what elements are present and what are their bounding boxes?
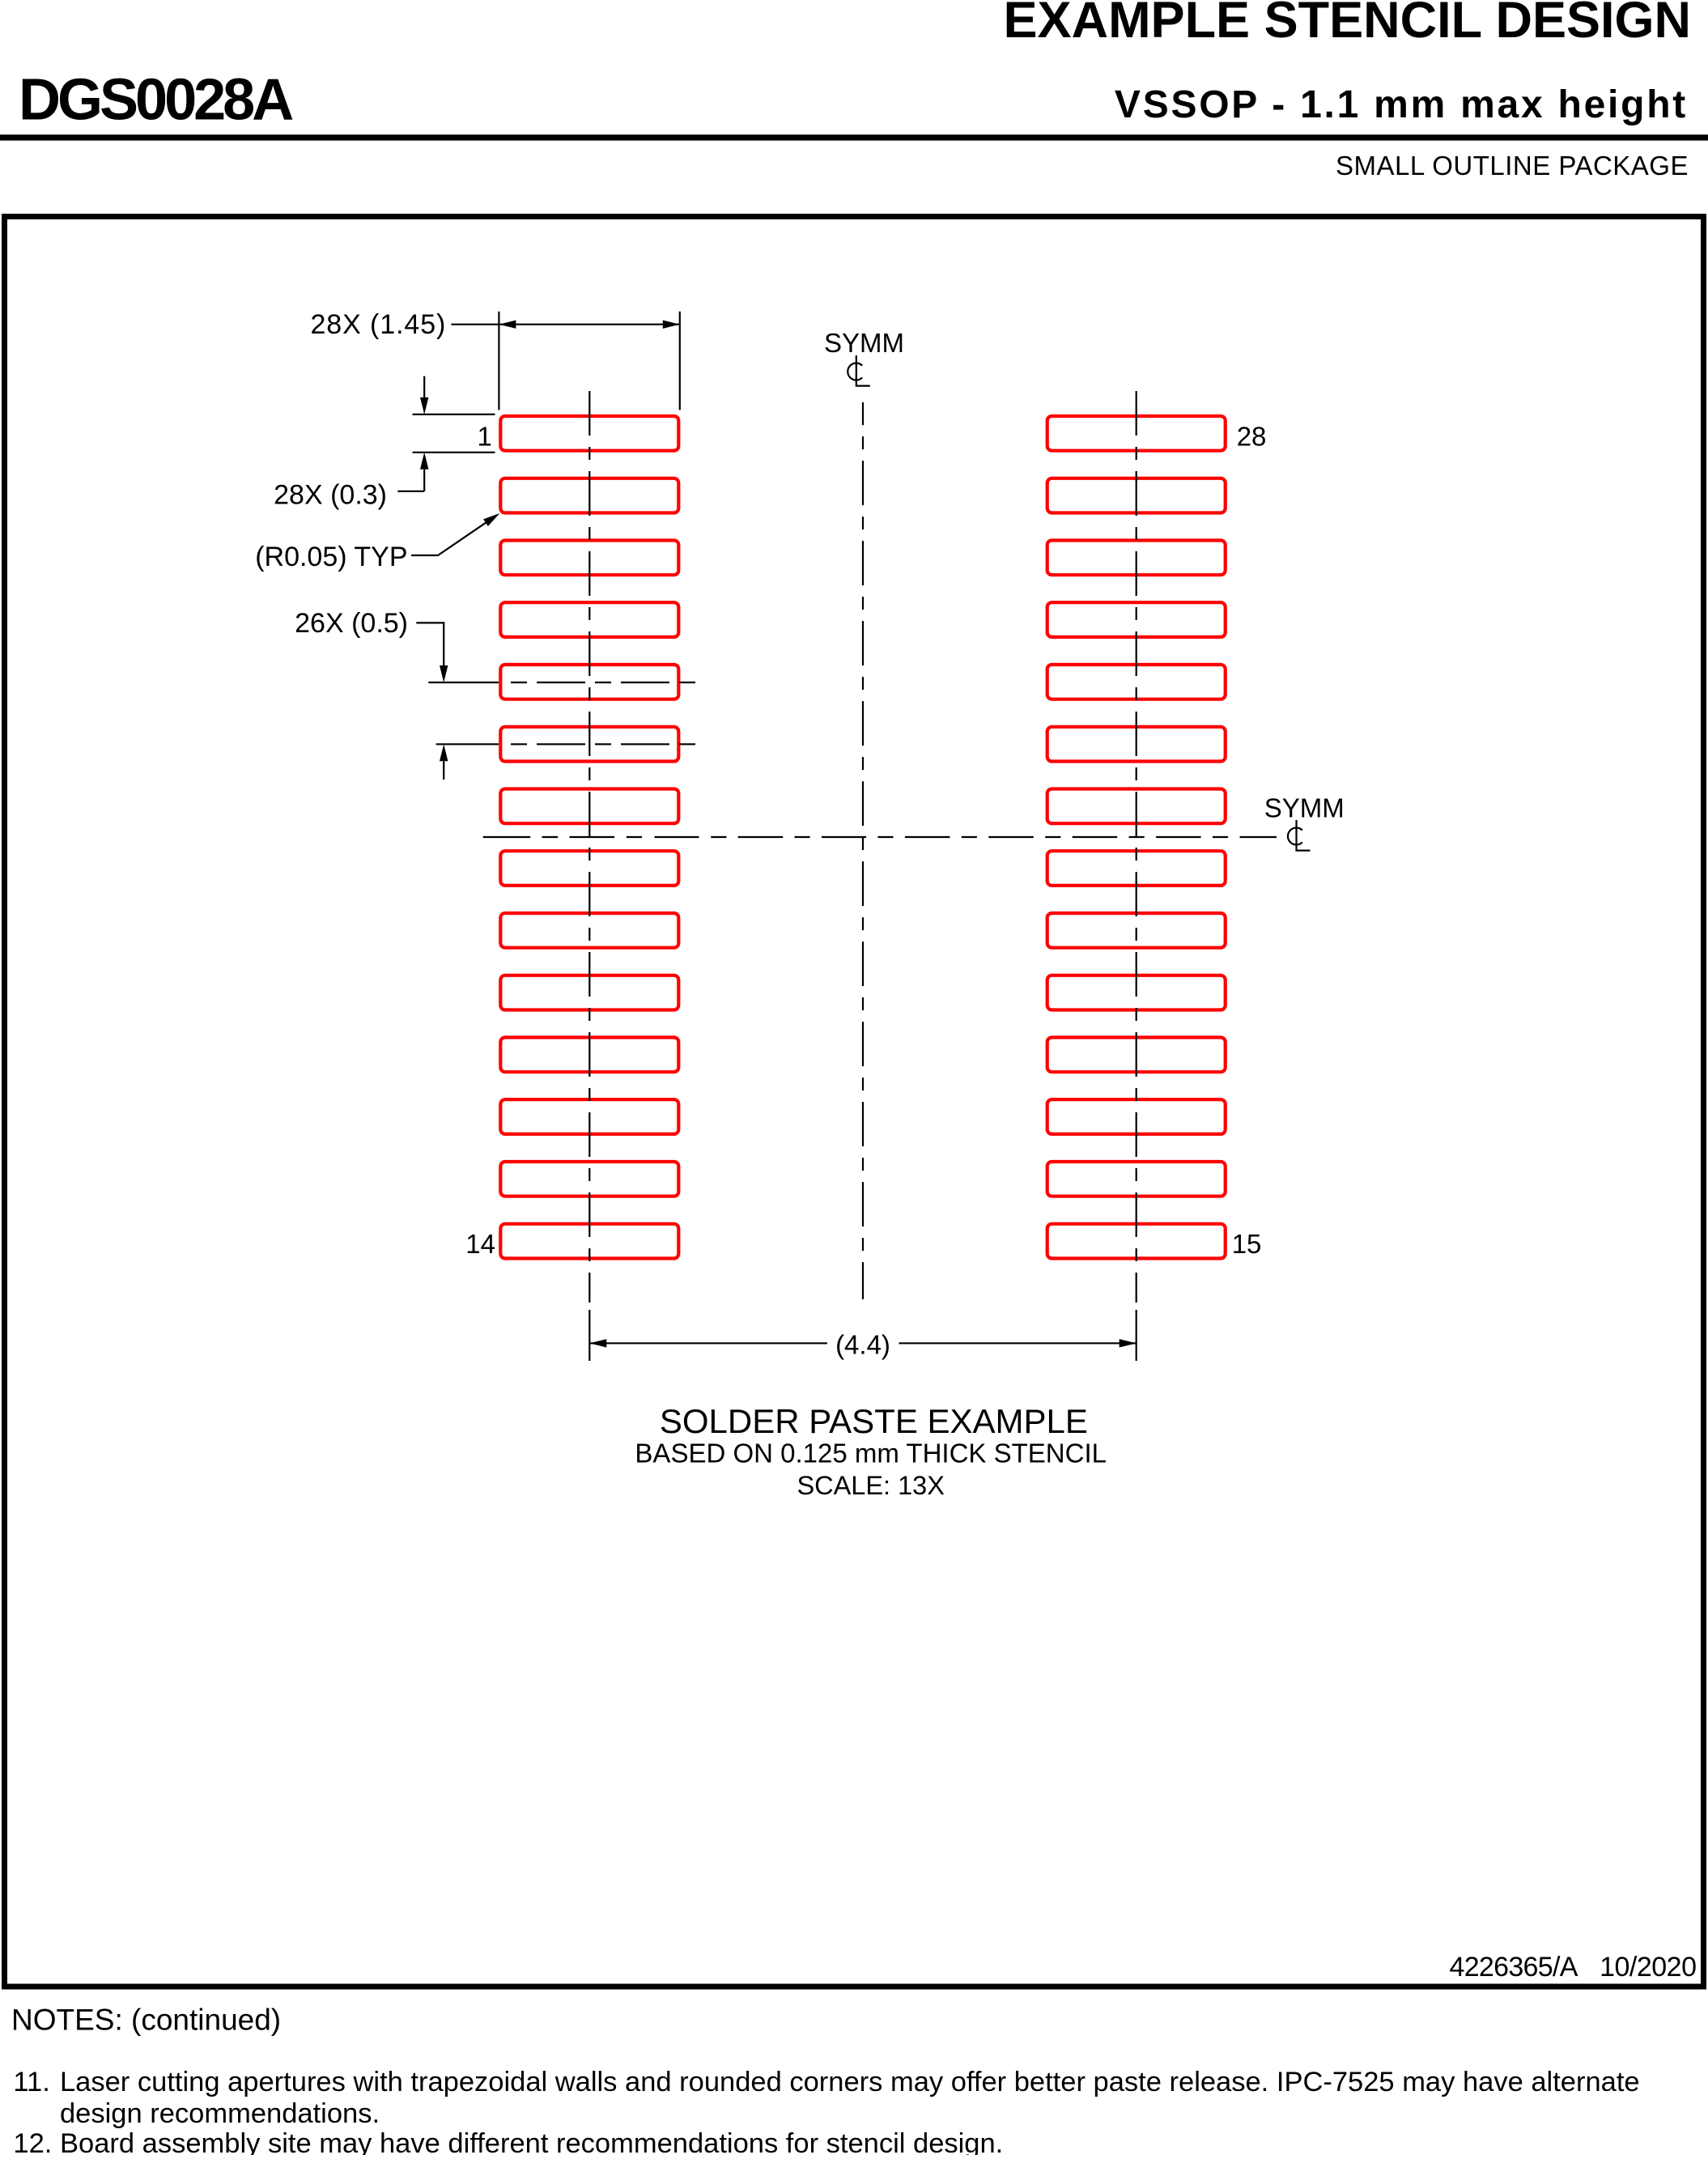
svg-text:26X (0.5): 26X (0.5)	[295, 608, 408, 639]
svg-text:(R0.05) TYP: (R0.05) TYP	[255, 542, 407, 572]
svg-text:28X (0.3): 28X (0.3)	[274, 480, 387, 511]
svg-text:10/2020: 10/2020	[1600, 1952, 1696, 1983]
svg-text:VSSOP - 1.1 mm max height: VSSOP - 1.1 mm max height	[1115, 83, 1688, 126]
svg-text:DGS0028A: DGS0028A	[19, 68, 293, 133]
svg-text:14: 14	[465, 1229, 495, 1259]
svg-text:11.: 11.	[13, 2067, 49, 2097]
svg-text:12.: 12.	[13, 2128, 52, 2155]
svg-text:SYMM: SYMM	[1264, 793, 1345, 822]
svg-text:design recommendations.: design recommendations.	[60, 2098, 380, 2129]
svg-text:4226365/A: 4226365/A	[1450, 1952, 1578, 1983]
svg-text:SCALE: 13X: SCALE: 13X	[797, 1471, 944, 1500]
svg-text:15: 15	[1232, 1229, 1262, 1259]
svg-text:BASED ON 0.125 mm THICK STENCI: BASED ON 0.125 mm THICK STENCIL	[635, 1439, 1107, 1468]
svg-text:28: 28	[1237, 422, 1267, 452]
svg-text:Board assembly site may have d: Board assembly site may have different r…	[60, 2128, 1003, 2155]
svg-text:EXAMPLE STENCIL DESIGN: EXAMPLE STENCIL DESIGN	[1004, 0, 1691, 49]
svg-text:SOLDER PASTE EXAMPLE: SOLDER PASTE EXAMPLE	[660, 1402, 1088, 1440]
svg-text:NOTES: (continued): NOTES: (continued)	[11, 2004, 281, 2037]
svg-text:28X (1.45): 28X (1.45)	[311, 309, 447, 340]
svg-text:SYMM: SYMM	[824, 328, 904, 358]
svg-text:1: 1	[477, 422, 491, 452]
svg-text:Laser cutting apertures with t: Laser cutting apertures with trapezoidal…	[60, 2067, 1640, 2097]
svg-text:(4.4): (4.4)	[835, 1330, 890, 1360]
svg-text:SMALL OUTLINE PACKAGE: SMALL OUTLINE PACKAGE	[1336, 151, 1689, 181]
